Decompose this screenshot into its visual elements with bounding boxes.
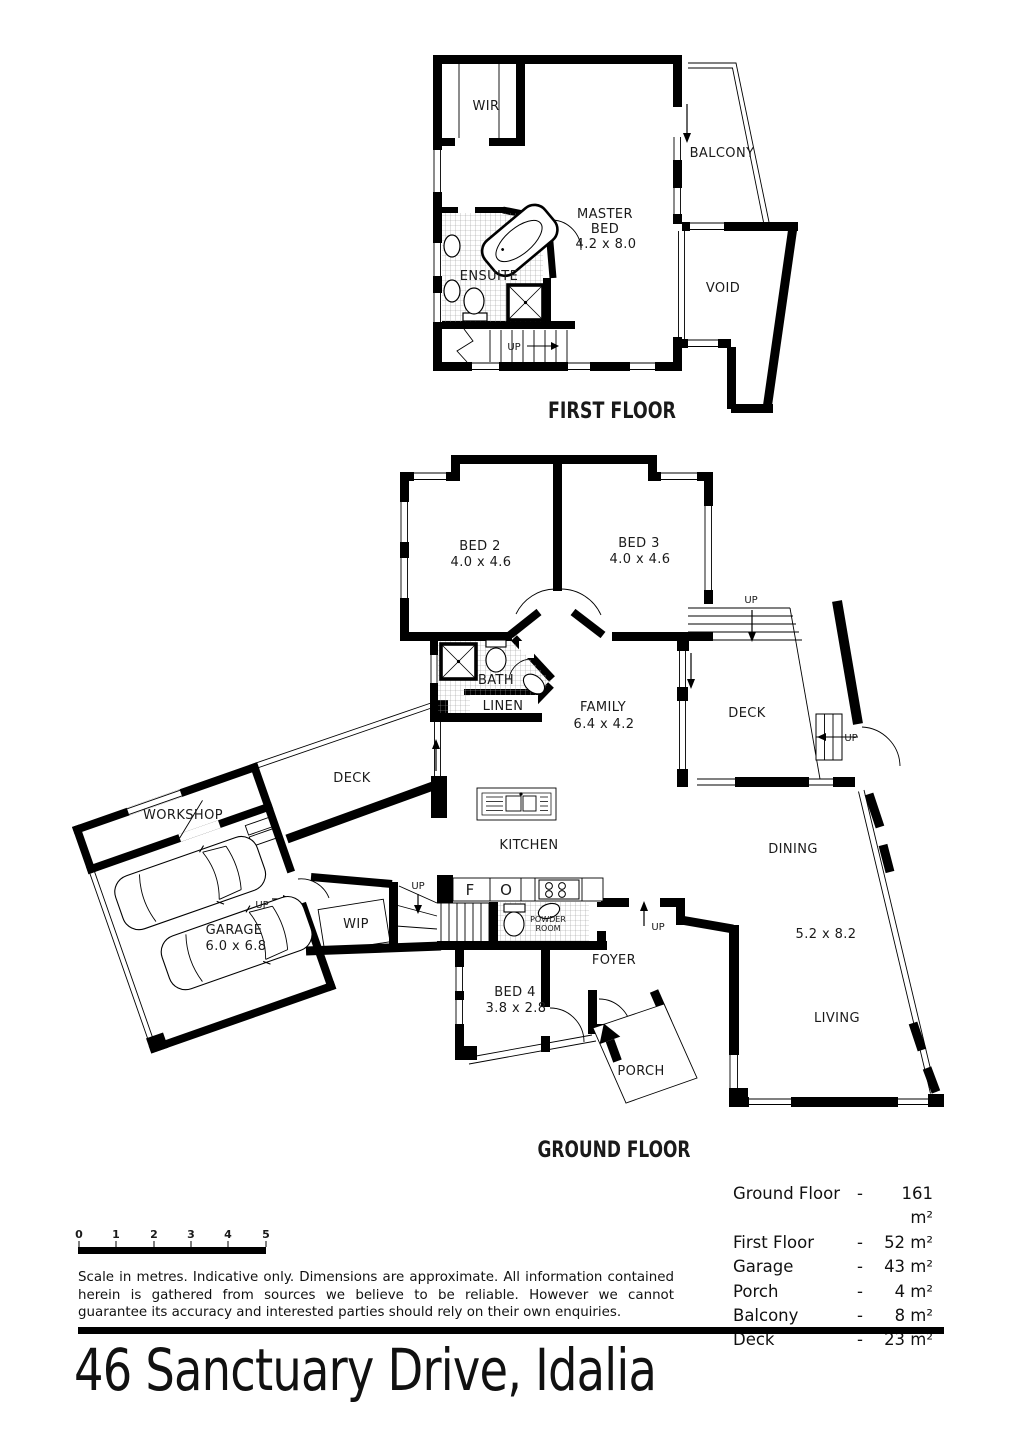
label-master-1: MASTER — [577, 207, 633, 222]
porch-outline — [593, 1004, 697, 1103]
label-foyer: FOYER — [592, 953, 636, 968]
area-separator: - — [857, 1280, 879, 1304]
bath-shower — [441, 644, 476, 679]
label-family-dims: 6.4 x 4.2 — [574, 717, 635, 732]
label-living: LIVING — [814, 1011, 860, 1026]
garage-workshop-block — [72, 762, 336, 1053]
area-label: First Floor — [733, 1231, 857, 1255]
area-label: Porch — [733, 1280, 857, 1304]
label-linen: LINEN — [483, 699, 524, 714]
label-master-2: BED — [591, 222, 619, 237]
scale-tick-1: 1 — [112, 1228, 120, 1241]
label-wir: WIR — [473, 99, 500, 114]
label-kitchen: KITCHEN — [499, 838, 558, 853]
scale-tick-2: 2 — [150, 1228, 158, 1241]
label-workshop: WORKSHOP — [143, 808, 223, 823]
balcony-railing — [688, 63, 769, 222]
bedroom-double-door-arcs — [516, 589, 601, 615]
area-row-porch: Porch - 4 m² — [733, 1280, 933, 1304]
area-label: Ground Floor — [733, 1182, 857, 1231]
label-powder-2: ROOM — [535, 924, 560, 933]
label-up-wip: UP — [411, 881, 424, 892]
label-ground-floor: GROUND FLOOR — [538, 1138, 691, 1163]
area-row-garage: Garage - 43 m² — [733, 1255, 933, 1279]
label-garage: GARAGE — [206, 923, 263, 938]
area-row-balcony: Balcony - 8 m² — [733, 1304, 933, 1328]
area-row-first-floor: First Floor - 52 m² — [733, 1231, 933, 1255]
label-void: VOID — [706, 281, 740, 296]
deck-family-door-arrow-icon — [432, 739, 440, 771]
label-fridge: F — [466, 881, 475, 899]
kitchen-island — [477, 788, 556, 820]
family-deck-door-arrow-icon — [687, 653, 695, 689]
area-value: 8 m² — [879, 1304, 933, 1328]
label-balcony: BALCONY — [690, 146, 755, 161]
scale-tick-3: 3 — [187, 1228, 195, 1241]
label-up-deck-top: UP — [744, 595, 757, 606]
area-value: 161 m² — [879, 1182, 933, 1231]
label-bed4-dims: 3.8 x 2.8 — [486, 1001, 547, 1016]
area-row-ground-floor: Ground Floor - 161 m² — [733, 1182, 933, 1231]
label-family: FAMILY — [580, 700, 626, 715]
floorplan-page: WIR BALCONY MASTER BED 4.2 x 8.0 ENSUITE… — [0, 0, 1024, 1448]
label-dining: DINING — [768, 842, 818, 857]
label-up-foyer: UP — [651, 922, 664, 933]
area-separator: - — [857, 1182, 879, 1231]
label-master-dims: 4.2 x 8.0 — [576, 237, 637, 252]
label-bath: BATH — [478, 673, 514, 688]
label-first-floor: FIRST FLOOR — [548, 399, 676, 424]
stairs-up-arrow-2-icon — [414, 894, 422, 914]
bed4-door-arc — [550, 1008, 584, 1042]
deck-stairs-down-arrow-icon — [748, 610, 756, 642]
scale-bar: 0 1 2 3 4 5 — [75, 1228, 270, 1254]
label-bed2: BED 2 — [459, 539, 501, 554]
label-wip: WIP — [343, 917, 369, 932]
powder-toilet — [504, 904, 525, 936]
label-bed4: BED 4 — [494, 985, 536, 1000]
scale-tick-4: 4 — [224, 1228, 232, 1241]
area-value: 52 m² — [879, 1231, 933, 1255]
label-bed3-dims: 4.0 x 4.6 — [610, 552, 671, 567]
label-ensuite: ENSUITE — [460, 269, 519, 284]
area-separator: - — [857, 1304, 879, 1328]
disclaimer-text: Scale in metres. Indicative only. Dimens… — [78, 1269, 674, 1322]
scale-tick-5: 5 — [262, 1228, 270, 1241]
label-living-dims: 5.2 x 8.2 — [796, 927, 857, 942]
ensuite-shower — [508, 285, 543, 320]
area-label: Balcony — [733, 1304, 857, 1328]
area-label: Garage — [733, 1255, 857, 1279]
label-garage-dims: 6.0 x 6.8 — [206, 939, 267, 954]
label-bed3: BED 3 — [618, 536, 660, 551]
area-separator: - — [857, 1231, 879, 1255]
area-value: 4 m² — [879, 1280, 933, 1304]
stairs-up-arrow-icon — [551, 342, 559, 350]
label-up-deck-side: UP — [844, 733, 857, 744]
bath-toilet — [486, 640, 506, 672]
balcony-door-arrow-icon — [683, 104, 691, 143]
scale-tick-0: 0 — [75, 1228, 83, 1241]
label-deck-right: DECK — [728, 706, 766, 721]
area-separator: - — [857, 1255, 879, 1279]
label-up-garage: UP — [255, 900, 268, 911]
label-deck-left: DECK — [333, 771, 371, 786]
deck-living-door-arc — [862, 727, 900, 766]
area-value: 43 m² — [879, 1255, 933, 1279]
label-oven: O — [500, 881, 512, 899]
label-bed2-dims: 4.0 x 4.6 — [451, 555, 512, 570]
label-up-ff: UP — [507, 342, 520, 353]
label-porch: PORCH — [617, 1064, 664, 1079]
kitchen-bench — [453, 878, 603, 901]
divider-rule — [78, 1327, 944, 1334]
label-powder-1: POWDER — [530, 915, 566, 924]
page-title: 46 Sanctuary Drive, Idalia — [74, 1336, 656, 1404]
